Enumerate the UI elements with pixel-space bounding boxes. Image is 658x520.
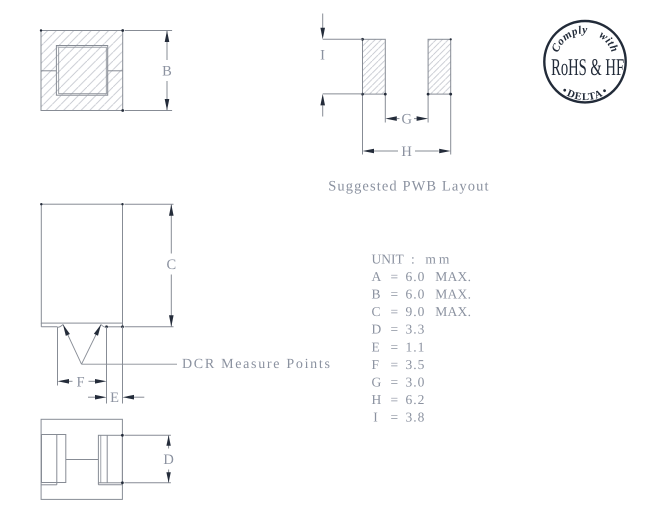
svg-text:UNIT: UNIT [372, 251, 405, 266]
svg-text:E: E [372, 339, 380, 354]
svg-text:6.0: 6.0 [406, 269, 426, 284]
svg-text:=: = [391, 410, 399, 425]
svg-text:=: = [391, 375, 399, 390]
svg-text:MAX.: MAX. [435, 287, 471, 302]
svg-text:3.3: 3.3 [406, 322, 426, 337]
svg-text:• DELTA •: • DELTA • [560, 85, 611, 103]
svg-text:H: H [372, 392, 382, 407]
svg-text::: : [411, 251, 415, 266]
svg-text:F: F [372, 357, 380, 372]
svg-text:MAX.: MAX. [435, 304, 471, 319]
svg-text:D: D [372, 322, 382, 337]
svg-text:I: I [320, 48, 325, 64]
svg-text:mm: mm [425, 251, 452, 266]
svg-text:RoHS & HF: RoHS & HF [551, 55, 624, 81]
svg-text:=: = [391, 322, 399, 337]
svg-text:F: F [77, 374, 85, 390]
svg-text:=: = [391, 357, 399, 372]
svg-text:E: E [110, 390, 119, 406]
svg-text:6.2: 6.2 [406, 392, 426, 407]
svg-text:3.0: 3.0 [406, 375, 426, 390]
svg-text:A: A [372, 269, 382, 284]
svg-text:1.1: 1.1 [406, 339, 426, 354]
svg-text:G: G [401, 112, 412, 128]
svg-text:=: = [391, 392, 399, 407]
svg-text:=: = [391, 269, 399, 284]
svg-text:=: = [391, 287, 399, 302]
svg-text:C: C [166, 257, 176, 273]
svg-text:=: = [391, 304, 399, 319]
svg-text:Suggested PWB Layout: Suggested PWB Layout [328, 178, 489, 194]
svg-text:B: B [162, 64, 172, 80]
svg-text:C: C [372, 304, 381, 319]
svg-text:B: B [372, 287, 381, 302]
svg-text:3.5: 3.5 [406, 357, 426, 372]
svg-text:DCR Measure Points: DCR Measure Points [182, 357, 332, 372]
svg-text:D: D [163, 452, 173, 468]
svg-text:I: I [373, 410, 378, 425]
svg-text:G: G [372, 375, 382, 390]
svg-text:6.0: 6.0 [406, 287, 426, 302]
svg-text:9.0: 9.0 [406, 304, 426, 319]
svg-text:H: H [401, 144, 412, 160]
svg-text:=: = [391, 339, 399, 354]
svg-text:MAX.: MAX. [435, 269, 471, 284]
svg-text:3.8: 3.8 [406, 410, 426, 425]
